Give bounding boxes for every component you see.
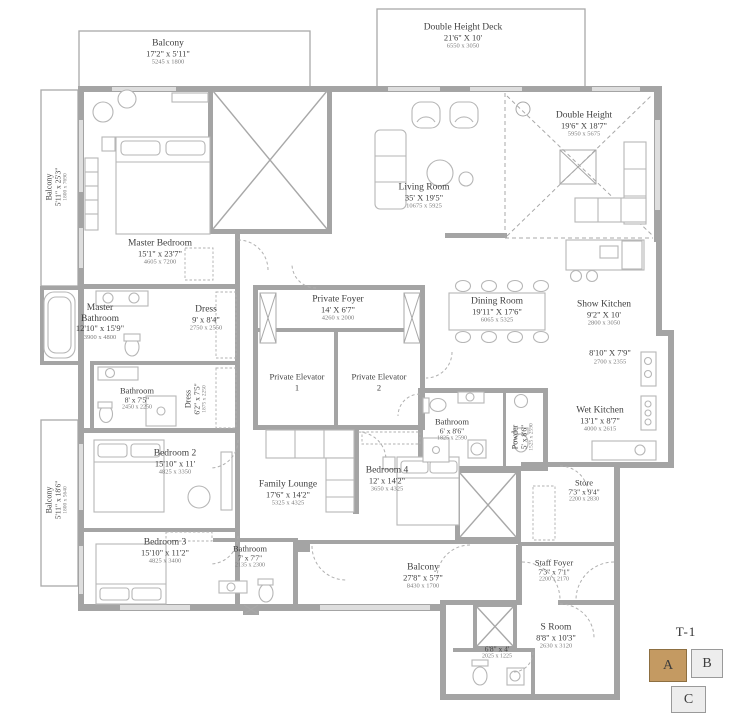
room-label-staff-foyer: Staff Foyer 7'3" x 7'1" 2200 x 2170: [535, 559, 573, 584]
room-dims: 7'3" x 7'1": [535, 568, 573, 576]
room-metric: 2135 x 2300: [233, 563, 267, 570]
room-dims: 35' X 19'5": [399, 193, 450, 203]
room-dims: 8'8" x 10'3": [536, 633, 576, 643]
room-metric: 1800 x 7690: [63, 168, 69, 207]
room-metric: 1525 x 2590: [529, 423, 535, 451]
room-label-double-height-deck: Double Height Deck 21'6" X 10' 6550 x 30…: [424, 22, 503, 49]
room-label-dress-2: Dress 6'2" x 7'5" 1875 x 2250: [184, 383, 208, 414]
room-dims: 15'1" x 23'7": [128, 249, 192, 259]
room-metric: 3900 x 4800: [69, 334, 131, 341]
room-metric: 2630 x 3120: [536, 642, 576, 649]
room-metric: 8430 x 1700: [403, 582, 443, 589]
room-dims: 15'10" x 11': [154, 459, 196, 469]
room-dims: 19'6" X 18'7": [556, 121, 612, 131]
room-dims: 8'10" X 7'9": [589, 349, 631, 359]
room-label-bathroom-3: Bathroom 6' x 8'6" 1825 x 2590: [435, 418, 469, 443]
room-label-bedroom-2: Bedroom 2 15'10" x 11' 4825 x 3350: [154, 448, 196, 475]
room-metric: 4825 x 3400: [141, 557, 189, 564]
room-dims: 19'11" X 17'6": [471, 307, 523, 317]
room-metric: 2200 x 2830: [568, 497, 599, 504]
room-label-living-room: Living Room 35' X 19'5" 10675 x 5925: [399, 182, 450, 209]
room-metric: 2025 x 1225: [482, 654, 512, 661]
room-dims: 14' X 6'7": [312, 305, 363, 315]
room-metric: 4000 x 2615: [576, 425, 624, 432]
room-label-family-lounge: Family Lounge 17'6" x 14'2" 5325 x 4325: [259, 479, 317, 506]
room-metric: 1800 x 5640: [63, 481, 69, 520]
room-label-bathroom-4: Bathroom 7' x 7'7" 2135 x 2300: [233, 545, 267, 570]
room-dims: 8' x 7'5": [120, 396, 154, 404]
room-label-bedroom-3: Bedroom 3 15'10" x 11'2" 4825 x 3400: [141, 537, 189, 564]
room-dims: 5' x 8'6": [520, 423, 528, 451]
room-metric: 6550 x 3050: [424, 42, 503, 49]
room-metric: 10675 x 5925: [399, 202, 450, 209]
room-label-s-bathroom: 6'8" x 4' 2025 x 1225: [482, 645, 512, 660]
room-metric: 4260 x 2000: [312, 314, 363, 321]
room-label-balcony-left-upper: Balcony 5'11" x 25'3" 1800 x 7690: [45, 168, 69, 207]
keyplan-unit-c[interactable]: C: [671, 686, 706, 713]
room-label-balcony-left-lower: Balcony 5'11" x 18'6" 1800 x 5640: [45, 481, 69, 520]
room-dims: 7'3" x 9'4": [568, 488, 599, 496]
room-name: Master Bathroom: [69, 303, 131, 324]
room-metric: 5245 x 1800: [146, 58, 190, 65]
keyplan-unit-b-label: B: [702, 656, 711, 672]
room-label-show-kitchen: Show Kitchen 9'2" X 10' 2800 x 3050: [577, 299, 631, 326]
room-metric: 1875 x 2250: [202, 383, 208, 414]
room-metric: 2700 x 2355: [589, 358, 631, 365]
room-label-kitchen-pantry: 8'10" X 7'9" 2700 x 2355: [589, 349, 631, 366]
room-dims: 27'8" x 5'7": [403, 573, 443, 583]
room-dims: 12' x 14'2": [366, 476, 408, 486]
room-label-s-room: S Room 8'8" x 10'3" 2630 x 3120: [536, 622, 576, 649]
keyplan-unit-a[interactable]: A: [649, 649, 687, 682]
floorplan-page: Balcony 17'2" x 5'11" 5245 x 1800 Balcon…: [0, 0, 749, 720]
room-label-dining-room: Dining Room 19'11" X 17'6" 6065 x 5325: [471, 296, 523, 323]
room-dims: 13'1" x 8'7": [576, 416, 624, 426]
room-metric: 4605 x 7200: [128, 258, 192, 265]
floorplan-drawing: [0, 0, 749, 720]
room-dims: 5'11" x 18'6": [54, 481, 62, 520]
room-dims: 9'2" X 10': [577, 310, 631, 320]
room-label-balcony-top: Balcony 17'2" x 5'11" 5245 x 1800: [146, 38, 190, 65]
room-label-private-elevator-1: Private Elevator 1: [269, 371, 325, 392]
room-label-private-elevator-2: Private Elevator 2: [351, 371, 407, 392]
keyplan-unit-c-label: C: [684, 692, 693, 708]
room-metric: 2750 x 2550: [190, 324, 223, 331]
room-dims: 9' x 8'4": [190, 315, 223, 325]
room-label-wet-kitchen: Wet Kitchen 13'1" x 8'7" 4000 x 2615: [576, 405, 624, 432]
room-label-bathroom-2: Bathroom 8' x 7'5" 2450 x 2250: [120, 387, 154, 412]
room-metric: 5950 x 5675: [556, 130, 612, 137]
room-label-powder: Powder 5' x 8'6" 1525 x 2590: [511, 423, 535, 451]
room-dims: 6'8" x 4': [482, 645, 512, 653]
room-dims: 6' x 8'6": [435, 427, 469, 435]
room-metric: 2800 x 3050: [577, 319, 631, 326]
room-label-bedroom-4: Bedroom 4 12' x 14'2" 3650 x 4325: [366, 465, 408, 492]
room-label-dress: Dress 9' x 8'4" 2750 x 2550: [190, 304, 223, 331]
room-label-balcony-bottom: Balcony 27'8" x 5'7" 8430 x 1700: [403, 562, 443, 589]
room-metric: 5325 x 4325: [259, 499, 317, 506]
room-dims: 7' x 7'7": [233, 554, 267, 562]
room-metric: 1825 x 2590: [435, 436, 469, 443]
room-metric: 2200 x 2170: [535, 577, 573, 584]
room-label-double-height: Double Height 19'6" X 18'7" 5950 x 5675: [556, 110, 612, 137]
room-metric: 6065 x 5325: [471, 316, 523, 323]
room-label-private-foyer: Private Foyer 14' X 6'7" 4260 x 2000: [312, 294, 363, 321]
keyplan-unit-b[interactable]: B: [691, 649, 723, 678]
room-dims: 17'2" x 5'11": [146, 49, 190, 59]
room-dims: 15'10" x 11'2": [141, 548, 189, 558]
room-dims: 5'11" x 25'3": [54, 168, 62, 207]
room-dims: 6'2" x 7'5": [193, 383, 201, 414]
room-label-master-bedroom: Master Bedroom 15'1" x 23'7" 4605 x 7200: [128, 238, 192, 265]
room-dims: 12'10" x 15'9": [69, 324, 131, 334]
room-dims: 21'6" X 10': [424, 33, 503, 43]
keyplan-title: T-1: [676, 624, 697, 640]
room-dims: 17'6" x 14'2": [259, 490, 317, 500]
keyplan-unit-a-label: A: [663, 658, 673, 674]
room-metric: 3650 x 4325: [366, 485, 408, 492]
room-label-store: Store 7'3" x 9'4" 2200 x 2830: [568, 479, 599, 504]
room-metric: 4825 x 3350: [154, 468, 196, 475]
room-label-master-bathroom: Master Bathroom 12'10" x 15'9" 3900 x 48…: [69, 303, 131, 341]
room-metric: 2450 x 2250: [120, 405, 154, 412]
